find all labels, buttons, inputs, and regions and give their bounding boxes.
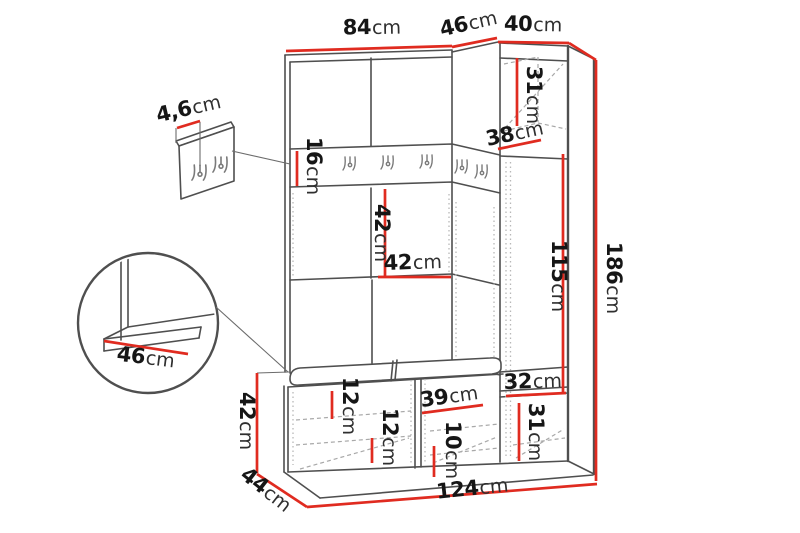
dim-bench-clearance-b: 12cm xyxy=(378,408,402,466)
dim-cabinet-bottom-height: 31cm xyxy=(524,403,548,461)
dim-niche-width: 42cm xyxy=(383,249,442,275)
diagram-canvas: 84cm 46cm 40cm 31cm 38cm 16cm 42cm 42cm … xyxy=(0,0,800,533)
dim-cabinet-width: 40cm xyxy=(504,11,563,36)
dim-cabinet-top-height: 31cm xyxy=(522,66,546,124)
furniture-dimension-diagram: 84cm 46cm 40cm 31cm 38cm 16cm 42cm 42cm … xyxy=(0,0,800,533)
dim-bench-height: 42cm xyxy=(235,392,259,450)
dim-cabinet-mid-height: 32cm xyxy=(503,368,562,394)
seat-detail-circle xyxy=(78,253,218,393)
dim-compartment-height: 10cm xyxy=(441,421,465,479)
dim-rail-height: 16cm xyxy=(302,137,326,195)
dim-door-height: 115cm xyxy=(547,240,571,312)
dim-bench-clearance-a: 12cm xyxy=(338,377,362,435)
dim-total-height: 186cm xyxy=(602,242,626,314)
dim-top-width: 84cm xyxy=(343,14,402,39)
